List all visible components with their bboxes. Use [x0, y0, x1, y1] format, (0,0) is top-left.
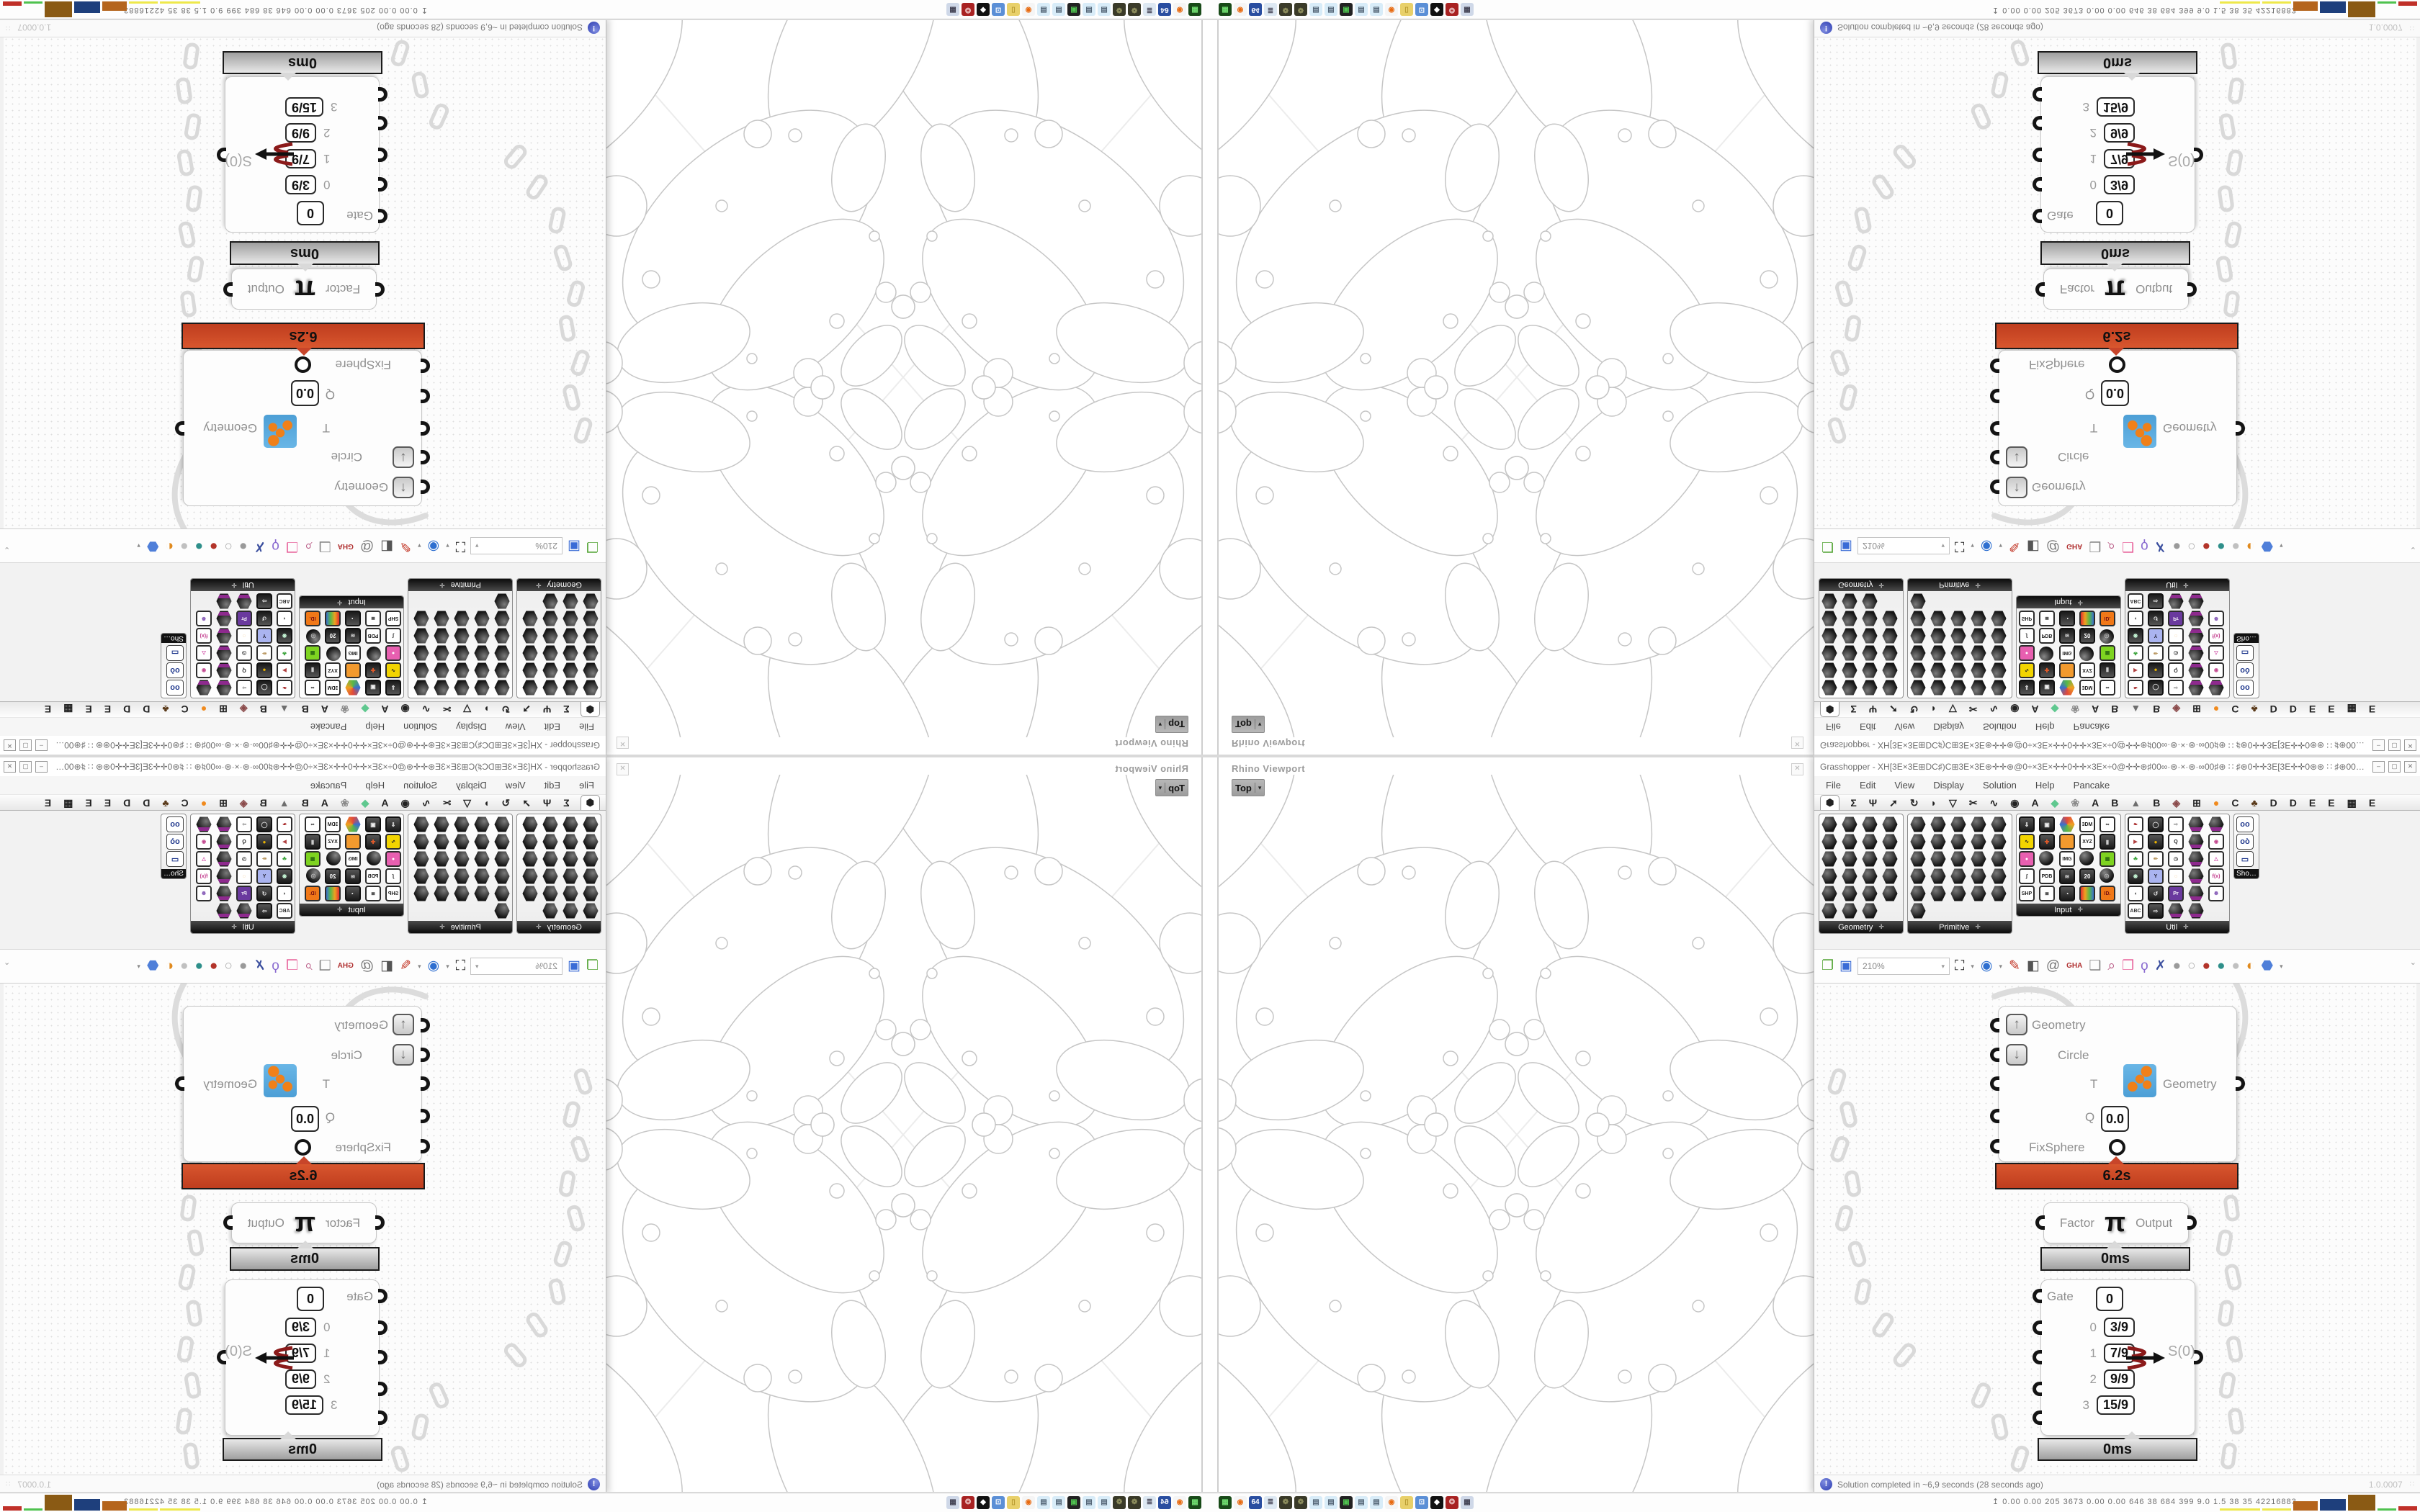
param-geometry-icon[interactable] [542, 851, 558, 867]
tab-plugin-orange-dot[interactable]: ● [2212, 796, 2220, 810]
param-geometry-icon[interactable] [1862, 593, 1878, 609]
app-console-icon[interactable]: ▦ [1188, 4, 1201, 17]
param-primitive-icon[interactable] [413, 611, 429, 626]
selection-gray-icon[interactable]: ● [180, 538, 188, 554]
param-geometry-icon[interactable] [1821, 645, 1837, 661]
tab-vector[interactable]: ➚ [1888, 702, 1899, 716]
param-geometry-icon[interactable] [1882, 628, 1898, 644]
menu-edit[interactable]: Edit [1860, 721, 1875, 732]
grasshopper-canvas[interactable]: ↑ ↓ Geometry Circle T Q FixSphere Geomet… [0, 37, 606, 528]
menu-solution[interactable]: Solution [403, 721, 437, 732]
zoom-caret-icon[interactable]: ▾ [1941, 963, 1945, 971]
param-geometry-icon[interactable] [1882, 680, 1898, 696]
param-primitive-icon[interactable] [1950, 816, 1966, 832]
tab-plugin-e3[interactable]: E [2367, 702, 2377, 716]
param-primitive-icon[interactable] [474, 868, 490, 884]
tab-plugin-b[interactable]: B [2110, 702, 2120, 716]
rhino-viewport[interactable]: Rhino Viewport ✕ Top ▾ [1217, 19, 1814, 755]
gha-installer-icon[interactable]: GHA [2066, 958, 2082, 974]
input-curve-icon[interactable]: ∫ [2019, 628, 2035, 644]
preview-wire-icon[interactable]: ○ [2187, 958, 2195, 974]
tab-plugin-d[interactable]: D [141, 702, 151, 716]
util-data6-icon[interactable] [2188, 886, 2204, 901]
app-wreath2-icon[interactable]: ❁ [1294, 1496, 1307, 1509]
input-honey-icon[interactable] [345, 834, 361, 850]
app-notepad3-icon[interactable]: ▤ [1052, 4, 1065, 17]
util-jewel-icon[interactable]: ◉ [2208, 834, 2224, 850]
util-pencil-icon[interactable]: ✏ [256, 851, 272, 867]
app-scroll-icon[interactable]: ≣ [1264, 4, 1277, 17]
document-preview-caret[interactable]: ▾ [137, 958, 140, 974]
param-geometry-icon[interactable] [583, 628, 599, 644]
input-knob-icon[interactable] [326, 647, 341, 661]
input-knob-icon[interactable] [2079, 647, 2094, 661]
viewport-top-tab[interactable]: Top ▾ [1155, 716, 1188, 733]
tab-plugin-flower[interactable]: ❀ [339, 702, 351, 716]
preview-eye-icon[interactable]: ◉ [428, 958, 440, 974]
param-primitive-icon[interactable] [494, 868, 510, 884]
input-swatch-icon[interactable]: ▦ [2099, 851, 2115, 867]
input-calendar-icon[interactable]: 20 [325, 868, 341, 884]
menu-solution[interactable]: Solution [403, 780, 437, 791]
tab-plugin-c[interactable]: C [2230, 796, 2240, 810]
input-canvas-icon[interactable]: ▣ [365, 816, 381, 832]
input-pdb-icon[interactable]: PDB [2039, 868, 2055, 884]
param-primitive-icon[interactable] [1930, 868, 1946, 884]
resize-grip[interactable]: ∷ [2410, 1480, 2415, 1488]
window-session-icon[interactable]: ❑ [2089, 958, 2101, 974]
document-preview-icon[interactable]: ⬣ [147, 958, 159, 974]
palette-expand-icon[interactable]: ✛ [1878, 581, 1884, 589]
tab-plugin-mountain[interactable]: ▲ [2129, 702, 2142, 716]
app-calculator-icon[interactable]: ▦ [946, 4, 959, 17]
gate-row-value-box[interactable]: 15/9 [2097, 97, 2135, 117]
tab-sets[interactable]: Ψ [542, 796, 552, 810]
param-primitive-icon[interactable] [474, 816, 490, 832]
tab-plugin-flower[interactable]: ❀ [2069, 796, 2081, 810]
input-axis-icon[interactable]: ✚ [365, 662, 381, 678]
util-data8-icon[interactable] [2188, 593, 2204, 609]
find-component-icon[interactable]: ⌕ [305, 958, 313, 974]
close-icon[interactable]: ✕ [2404, 761, 2416, 773]
zoom-extents-icon[interactable]: ⛶ [1955, 958, 1964, 974]
util-jewel-icon[interactable]: ◉ [196, 662, 212, 678]
menu-display[interactable]: Display [1933, 780, 1964, 791]
tab-transform[interactable]: ∿ [421, 796, 432, 810]
param-primitive-icon[interactable] [474, 628, 490, 644]
input-id-icon[interactable]: ID. [305, 611, 321, 626]
param-geometry-icon[interactable] [563, 593, 578, 609]
fixsphere-component[interactable]: ↑ ↓ Geometry Circle T Q FixSphere Geomet… [1998, 1006, 2237, 1162]
app-browser-icon[interactable]: ◉ [1173, 1496, 1186, 1509]
input-img-icon[interactable]: IMG [345, 645, 361, 661]
param-geometry-icon[interactable] [1842, 680, 1857, 696]
open-file-icon[interactable]: ❐ [586, 538, 599, 554]
util-data6-icon[interactable] [2188, 611, 2204, 626]
util-timer-icon[interactable]: ◷ [2168, 851, 2184, 867]
palette-group-footer[interactable]: Primitive✛ [408, 921, 512, 933]
menu-solution[interactable]: Solution [1983, 780, 2017, 791]
param-primitive-icon[interactable] [413, 645, 429, 661]
param-geometry-icon[interactable] [1821, 680, 1837, 696]
param-geometry-icon[interactable] [563, 868, 578, 884]
util-jewel-icon[interactable]: ◉ [196, 834, 212, 850]
param-geometry-icon[interactable] [1882, 645, 1898, 661]
param-geometry-icon[interactable] [1821, 611, 1837, 626]
param-primitive-icon[interactable] [1910, 611, 1926, 626]
gate-selector-component[interactable]: Gate 0 03/917/929/9315/9 S(0) [225, 1279, 380, 1436]
tab-plugin-diamond[interactable]: ◆ [360, 796, 371, 810]
output-port-output[interactable] [223, 1215, 233, 1230]
tab-intersect[interactable]: ✂ [441, 702, 452, 716]
param-primitive-icon[interactable] [494, 903, 510, 919]
app-browser2-icon[interactable]: ◉ [1385, 4, 1398, 17]
lamp-widget-icon[interactable]: ϙ [2141, 958, 2148, 974]
util-egg-icon[interactable]: ◌ [2168, 868, 2184, 884]
open-file-icon[interactable]: ❐ [1821, 958, 1834, 974]
output-port-output[interactable] [223, 282, 233, 297]
preview-eye-icon[interactable]: ◉ [1981, 538, 1993, 554]
param-geometry-icon[interactable] [542, 628, 558, 644]
app-notepad2-icon[interactable]: ▤ [1325, 4, 1337, 17]
palette-group-footer[interactable]: Geometry✛ [1819, 921, 1903, 933]
util-rec-icon[interactable]: ● [2148, 662, 2164, 678]
menu-view[interactable]: View [506, 721, 526, 732]
util-shirt-icon[interactable]: Y [2148, 868, 2164, 884]
q-value-box[interactable]: 0.0 [2101, 1106, 2129, 1132]
util-play-icon[interactable]: ▶ [2128, 662, 2143, 678]
util-half-icon[interactable]: ◖ [277, 611, 292, 626]
app-notepad4-icon[interactable]: ▤ [1370, 1496, 1383, 1509]
param-geometry-icon[interactable] [1821, 903, 1837, 919]
selection-orange-icon[interactable]: ◐ [2246, 538, 2254, 554]
util-data5-icon[interactable] [216, 868, 232, 884]
input-swatch-icon[interactable]: ▦ [2099, 645, 2115, 661]
param-geometry-icon[interactable] [1862, 903, 1878, 919]
param-primitive-icon[interactable] [413, 886, 429, 901]
param-geometry-icon[interactable] [542, 903, 558, 919]
param-primitive-icon[interactable] [1930, 680, 1946, 696]
util-shirt-icon[interactable]: Y [2148, 628, 2164, 644]
input-canvas-icon[interactable]: ▣ [2039, 816, 2055, 832]
param-geometry-icon[interactable] [583, 886, 599, 901]
viewport-top-tab[interactable]: Top ▾ [1232, 716, 1265, 733]
tab-plugin-grid[interactable]: ⊞ [2191, 702, 2202, 716]
tab-transform[interactable]: ∿ [421, 702, 432, 716]
input-port-t[interactable] [1990, 1076, 1999, 1091]
app-scroll-icon[interactable]: ≣ [1143, 4, 1156, 17]
grasshopper-titlebar[interactable]: Grasshopper - XH[3E×3E⊞DC♯)C⊞3E×3E⊛✛✛⊛@0… [0, 735, 606, 755]
fixsphere-toggle[interactable] [295, 356, 311, 373]
param-primitive-icon[interactable] [474, 886, 490, 901]
tab-plugin-grid[interactable]: ⊞ [218, 796, 229, 810]
menu-edit[interactable]: Edit [544, 721, 560, 732]
input-colorwheel-icon[interactable] [367, 647, 381, 661]
tab-maths[interactable]: Σ [1849, 702, 1857, 716]
tab-plugin-b2[interactable]: B [259, 796, 269, 810]
app-wreath-icon[interactable]: ❁ [1279, 1496, 1292, 1509]
tab-vector[interactable]: ➚ [521, 702, 532, 716]
gate-selector-component[interactable]: Gate 0 03/917/929/9315/9 S(0) [2040, 76, 2195, 233]
input-eyes-icon[interactable]: ∞ [2099, 680, 2115, 696]
param-geometry-icon[interactable] [1842, 851, 1857, 867]
input-port-0[interactable] [2033, 177, 2042, 192]
tab-plugin-e[interactable]: E [103, 796, 112, 810]
goggles-info-icon[interactable]: oo [2236, 816, 2254, 832]
param-geometry-icon[interactable] [563, 611, 578, 626]
sketch-icon[interactable]: ✎ [2009, 538, 2020, 554]
q-value-box[interactable]: 0.0 [2101, 380, 2129, 406]
zoom-extents-caret[interactable]: ▾ [446, 958, 449, 974]
param-primitive-icon[interactable] [434, 680, 449, 696]
app-badge-icon[interactable]: ❂ [1446, 4, 1458, 17]
menu-edit[interactable]: Edit [1860, 780, 1875, 791]
app-calculator-icon[interactable]: ▦ [1461, 4, 1474, 17]
input-target-icon[interactable]: ◎ [2099, 868, 2114, 883]
util-arrow-icon[interactable]: ⇨ [2148, 593, 2164, 609]
param-primitive-icon[interactable] [1910, 851, 1926, 867]
zoom-extents-icon[interactable]: ⛶ [1955, 538, 1964, 554]
param-geometry-icon[interactable] [1821, 816, 1837, 832]
util-loop-icon[interactable]: ◯ [2148, 816, 2164, 832]
util-palette-icon[interactable]: ☸ [196, 611, 212, 626]
param-geometry-icon[interactable] [1862, 611, 1878, 626]
tab-plugin-a[interactable]: A [2030, 796, 2040, 810]
util-play-icon[interactable]: ▶ [277, 834, 292, 850]
util-data8-icon[interactable] [2188, 903, 2204, 919]
util-fx-icon[interactable]: f(x) [196, 868, 212, 884]
document-preview-caret[interactable]: ▾ [2280, 958, 2283, 974]
output-port-geometry[interactable] [175, 1076, 184, 1091]
gha-installer-icon[interactable]: GHA [2066, 538, 2082, 554]
param-primitive-icon[interactable] [494, 593, 510, 609]
param-primitive-icon[interactable] [1910, 628, 1926, 644]
tab-plugin-a2[interactable]: A [2090, 796, 2100, 810]
param-geometry-icon[interactable] [542, 593, 558, 609]
util-undo-icon[interactable]: ↺ [256, 611, 272, 626]
util-arrow-icon[interactable]: ⇨ [256, 593, 272, 609]
input-toggle-icon[interactable]: ▮ [305, 834, 321, 850]
param-primitive-icon[interactable] [1991, 628, 2007, 644]
menu-pancake[interactable]: Pancake [2074, 721, 2110, 732]
menu-file[interactable]: File [579, 721, 594, 732]
param-geometry-icon[interactable] [1842, 886, 1857, 901]
util-triloop-icon[interactable]: ☘ [277, 851, 292, 867]
palette-expand-icon[interactable]: ✛ [536, 581, 542, 589]
param-primitive-icon[interactable] [1910, 645, 1926, 661]
lamp-widget-icon[interactable]: ϙ [2141, 538, 2148, 554]
input-port-gate[interactable] [2033, 209, 2042, 223]
param-geometry-icon[interactable] [1882, 611, 1898, 626]
util-play-icon[interactable]: ▶ [2128, 834, 2143, 850]
downstream-button[interactable]: ↓ [2006, 446, 2027, 468]
tab-sets[interactable]: Ψ [542, 702, 552, 716]
app-monitor-icon[interactable]: ▣ [1067, 1496, 1080, 1509]
param-geometry-icon[interactable] [1882, 662, 1898, 678]
preview-red-icon[interactable]: ● [210, 538, 218, 554]
tab-plugin-e[interactable]: E [103, 702, 112, 716]
tab-plugin-d[interactable]: D [2269, 796, 2279, 810]
tab-mesh[interactable]: ▽ [1948, 796, 1958, 810]
palette-group-footer[interactable]: Geometry✛ [517, 921, 601, 933]
app-wreath-icon[interactable]: ❁ [1279, 4, 1292, 17]
util-pr-icon[interactable]: Pr [236, 886, 252, 901]
viewport-close-icon[interactable]: ✕ [617, 763, 629, 775]
tab-plugin-a2[interactable]: A [320, 796, 330, 810]
gate-selector-component[interactable]: Gate 0 03/917/929/9315/9 S(0) [225, 76, 380, 233]
param-primitive-icon[interactable] [1991, 816, 2007, 832]
param-primitive-icon[interactable] [494, 628, 510, 644]
util-data7-icon[interactable] [236, 593, 252, 609]
palette-expand-icon[interactable]: ✛ [1878, 923, 1884, 931]
input-spectrum-icon[interactable] [2079, 886, 2095, 901]
util-half-icon[interactable]: ◖ [277, 886, 292, 901]
input-id-icon[interactable]: ID. [2099, 886, 2115, 901]
app-wreath-icon[interactable]: ❁ [1128, 1496, 1141, 1509]
galapagos-icon[interactable]: ✗ [254, 958, 265, 974]
sketch-icon[interactable]: ✎ [400, 958, 411, 974]
resize-grip[interactable]: ∷ [5, 1480, 10, 1488]
tab-display[interactable]: ◉ [400, 796, 411, 810]
lamp-widget-icon[interactable]: ϙ [272, 538, 279, 554]
input-import-icon[interactable]: ⇓ [2019, 816, 2035, 832]
input-import-icon[interactable]: ⇓ [2019, 680, 2035, 696]
util-palette-icon[interactable]: ☸ [2208, 611, 2224, 626]
zoom-caret-icon[interactable]: ▾ [475, 542, 479, 550]
param-geometry-icon[interactable] [522, 680, 538, 696]
util-egg-icon[interactable]: ◌ [236, 868, 252, 884]
obscure-viewport-icon[interactable]: ◧ [2027, 538, 2040, 554]
param-primitive-icon[interactable] [413, 662, 429, 678]
app-wreath2-icon[interactable]: ❁ [1294, 4, 1307, 17]
input-slider-icon[interactable]: ● [2019, 645, 2035, 661]
palette-group-footer[interactable]: Geometry✛ [517, 579, 601, 591]
input-port-gate[interactable] [2033, 1289, 2042, 1303]
tab-plugin-b2[interactable]: B [2151, 796, 2161, 810]
open-file-icon[interactable]: ❐ [586, 958, 599, 974]
preview-caret[interactable]: ▾ [1999, 538, 2002, 554]
param-geometry-icon[interactable] [1862, 886, 1878, 901]
app-calculator-icon[interactable]: ▦ [946, 1496, 959, 1509]
util-data2-icon[interactable] [2208, 680, 2224, 696]
tab-plugin-c[interactable]: C [2230, 702, 2240, 716]
param-geometry-icon[interactable] [522, 611, 538, 626]
tab-params[interactable]: ⬢ [1820, 702, 1839, 717]
input-stream-icon[interactable]: ≋ [2059, 868, 2075, 884]
window-session-icon[interactable]: ❑ [319, 958, 331, 974]
grasshopper-canvas[interactable]: ↑ ↓ Geometry Circle T Q FixSphere Geomet… [0, 984, 606, 1475]
param-geometry-icon[interactable] [1821, 662, 1837, 678]
viewport-tab-caret-icon[interactable]: ▾ [1159, 784, 1162, 792]
util-data3-icon[interactable] [2188, 834, 2204, 850]
tab-plugin-d2[interactable]: D [122, 796, 132, 810]
input-target-icon[interactable]: ◎ [2099, 629, 2114, 644]
param-primitive-icon[interactable] [474, 611, 490, 626]
input-pdb-icon[interactable]: PDB [365, 628, 381, 644]
param-primitive-icon[interactable] [1910, 834, 1926, 850]
param-primitive-icon[interactable] [434, 645, 449, 661]
preview-caret[interactable]: ▾ [1999, 958, 2002, 974]
menu-pancake[interactable]: Pancake [310, 721, 347, 732]
grasshopper-titlebar[interactable]: Grasshopper - XH[3E×3E⊞DC♯)C⊞3E×3E⊛✛✛⊛@0… [1814, 757, 2420, 777]
app-scroll-icon[interactable]: ≣ [1264, 1496, 1277, 1509]
util-tree-icon[interactable]: ❋ [277, 868, 292, 884]
app-notepad2-icon[interactable]: ▤ [1083, 4, 1095, 17]
app-notepad4-icon[interactable]: ▤ [1370, 4, 1383, 17]
param-geometry-icon[interactable] [1821, 628, 1837, 644]
param-geometry-icon[interactable] [563, 816, 578, 832]
palette-expand-icon[interactable]: ✛ [2077, 906, 2083, 914]
pi-component[interactable]: Factor π Output [231, 269, 377, 310]
input-port-factor[interactable] [2035, 282, 2045, 297]
rhino-viewport[interactable]: Rhino Viewport ✕ Top ▾ [606, 19, 1203, 755]
viewport-top-tab[interactable]: Top ▾ [1232, 779, 1265, 796]
util-cherry-icon[interactable]: ❧ [2128, 680, 2143, 696]
tab-curve[interactable]: ↻ [500, 796, 511, 810]
tab-plugin-crest[interactable]: ◈ [238, 796, 249, 810]
tab-plugin-crest[interactable]: ◈ [2171, 702, 2182, 716]
gate-value-box[interactable]: 0 [297, 1287, 324, 1311]
input-honey-icon[interactable] [2059, 834, 2075, 850]
remote-connect-icon[interactable]: @ [360, 958, 374, 974]
input-import-icon[interactable]: ⇓ [385, 816, 401, 832]
param-primitive-icon[interactable] [454, 868, 470, 884]
app-badge-icon[interactable]: ❂ [1446, 1496, 1458, 1509]
param-primitive-icon[interactable] [434, 886, 449, 901]
param-primitive-icon[interactable] [454, 680, 470, 696]
util-pencil-icon[interactable]: ✏ [256, 645, 272, 661]
util-data3-icon[interactable] [2188, 662, 2204, 678]
param-primitive-icon[interactable] [1950, 886, 1966, 901]
util-data4-icon[interactable] [216, 645, 232, 661]
preview-wire-icon[interactable]: ○ [224, 958, 232, 974]
palette-expand-icon[interactable]: ✛ [2183, 581, 2189, 589]
grasshopper-titlebar[interactable]: Grasshopper - XH[3E×3E⊞DC♯)C⊞3E×3E⊛✛✛⊛@0… [0, 757, 606, 777]
menu-view[interactable]: View [1894, 780, 1914, 791]
app-monitor-icon[interactable]: ▣ [1340, 1496, 1353, 1509]
util-triloop-icon[interactable]: ☘ [277, 645, 292, 661]
util-data6-icon[interactable] [216, 611, 232, 626]
pi-component[interactable]: Factor π Output [231, 1202, 377, 1243]
gate-row-value-box[interactable]: 3/9 [285, 175, 316, 194]
fixsphere-toggle[interactable] [2109, 356, 2125, 373]
param-primitive-icon[interactable] [1950, 680, 1966, 696]
selection-orange-icon[interactable]: ◐ [165, 958, 173, 974]
param-primitive-icon[interactable] [1910, 903, 1926, 919]
param-geometry-icon[interactable] [542, 662, 558, 678]
app-notepad3-icon[interactable]: ▤ [1355, 1496, 1368, 1509]
input-port-circle[interactable] [1990, 1048, 1999, 1062]
input-xyz-icon[interactable]: XYZ [2079, 834, 2095, 850]
input-spectrum-icon[interactable] [325, 611, 341, 626]
tab-plugin-d[interactable]: D [141, 796, 151, 810]
toolbar-overflow-icon[interactable]: ⌄ [4, 958, 10, 967]
tab-plugin-a[interactable]: A [380, 702, 390, 716]
util-egg-icon[interactable]: ◌ [236, 628, 252, 644]
param-primitive-icon[interactable] [413, 680, 429, 696]
tab-curve[interactable]: ↻ [500, 702, 511, 716]
param-geometry-icon[interactable] [542, 611, 558, 626]
upstream-button[interactable]: ↑ [2006, 1014, 2027, 1035]
input-curve-icon[interactable]: ∫ [385, 628, 401, 644]
app-browser-icon[interactable]: ◉ [1234, 1496, 1247, 1509]
input-shp-icon[interactable]: SHP [385, 611, 401, 626]
input-axis-icon[interactable]: ✚ [2039, 662, 2055, 678]
util-fx-icon[interactable]: f(x) [2208, 628, 2224, 644]
param-geometry-icon[interactable] [1842, 834, 1857, 850]
input-honey-icon[interactable] [2059, 662, 2075, 678]
param-geometry-icon[interactable] [1842, 816, 1857, 832]
